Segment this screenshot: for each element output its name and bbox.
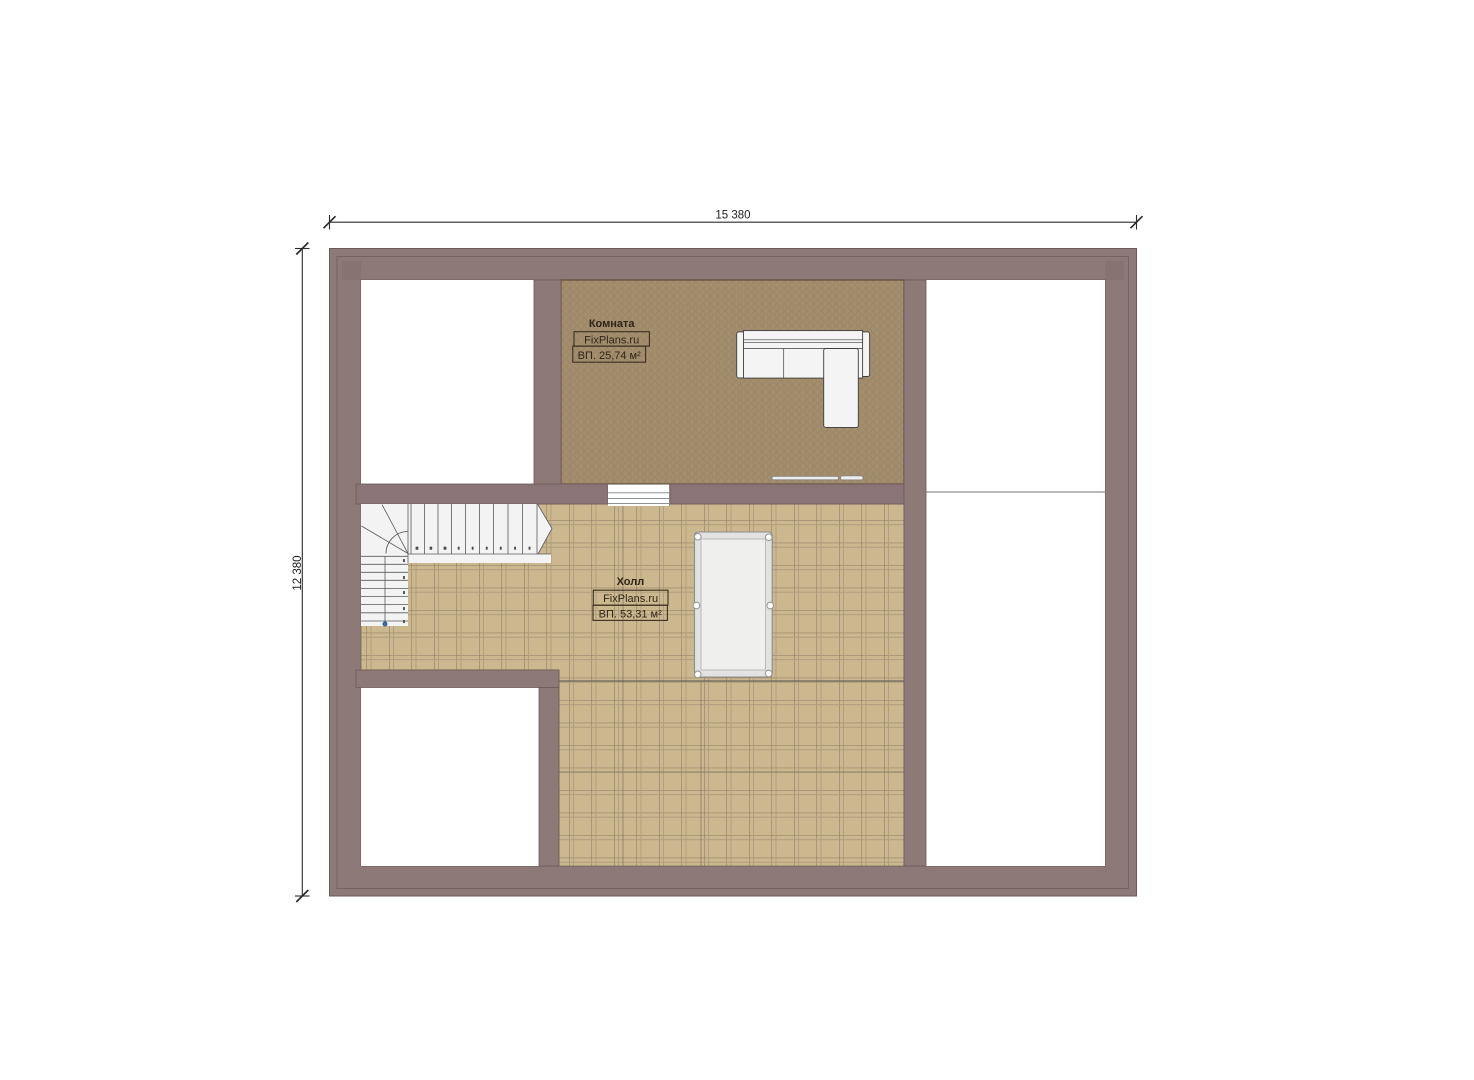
svg-text:ВП. 53,31 м²: ВП. 53,31 м² xyxy=(599,609,663,621)
svg-text:ВП. 25,74 м²: ВП. 25,74 м² xyxy=(578,350,642,362)
svg-text:Холл: Холл xyxy=(617,576,645,588)
svg-text:FixPlans.ru: FixPlans.ru xyxy=(603,593,658,605)
svg-text:Комната: Комната xyxy=(589,318,636,330)
svg-text:FixPlans.ru: FixPlans.ru xyxy=(584,335,639,347)
svg-text:12 380: 12 380 xyxy=(292,555,304,590)
svg-text:15 380: 15 380 xyxy=(715,210,750,222)
